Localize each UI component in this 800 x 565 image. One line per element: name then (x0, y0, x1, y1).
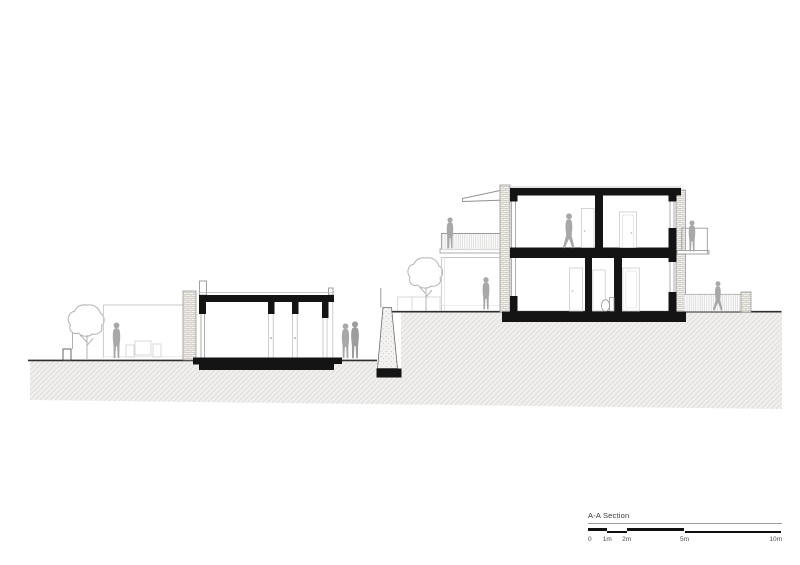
tree-icon (408, 258, 443, 311)
retaining-wall-stem (378, 308, 398, 369)
left-wall-header (199, 295, 206, 314)
chair (126, 345, 134, 357)
scale-segment (685, 531, 782, 533)
left-wall-base (510, 296, 518, 312)
left-wall-header (510, 188, 518, 202)
chair (153, 344, 161, 357)
garden-fence-mesh (684, 295, 741, 312)
scale-tick-label: 10m (769, 536, 782, 543)
door-leaf-lines (293, 314, 298, 358)
brick-fence-post (741, 292, 751, 312)
balcony-slab (677, 251, 709, 255)
door-outline (582, 209, 595, 248)
toilet-bowl (602, 300, 610, 312)
bathroom-partition-left (585, 258, 592, 312)
foundation-slab (502, 312, 686, 323)
person-silhouette-standing (689, 220, 696, 251)
person-silhouette-standing (483, 277, 490, 309)
pedestrian-couple (342, 321, 359, 358)
brick-pier (183, 291, 196, 360)
person-silhouette-standing (342, 323, 349, 358)
person-silhouette-standing (113, 323, 120, 359)
scale-bar-graphic (588, 528, 782, 534)
retaining-wall-footing (377, 369, 402, 378)
partition-lintel (292, 302, 299, 314)
upper-floor-doors (582, 209, 637, 248)
terrace-frame (441, 258, 503, 312)
floor-slab-step-left (193, 358, 199, 365)
scale-tick-label: 1m (603, 536, 612, 543)
scale-tick-label: 2m (622, 536, 631, 543)
section-drawing-canvas (0, 0, 800, 565)
earth-section (28, 312, 782, 409)
scale-segment (588, 528, 607, 531)
table (135, 341, 151, 355)
left-garden (63, 305, 183, 360)
door-leaf-lines (269, 314, 274, 358)
drawing-title: A-A Section (588, 511, 782, 520)
door-outline (620, 212, 637, 248)
door-handle (270, 337, 272, 339)
tree-icon (68, 305, 104, 360)
brick-pier-left (500, 185, 510, 312)
scale-tick-label: 5m (680, 536, 689, 543)
lower-terrace-elevation (441, 258, 504, 312)
right-wall-header (322, 302, 329, 318)
right-wall-base (669, 292, 677, 312)
sunroom-furniture (126, 341, 161, 357)
door-outline (623, 268, 640, 312)
door-inner-panel (623, 215, 634, 248)
toilet-tank (610, 298, 615, 312)
person-silhouette-walking (563, 213, 574, 248)
scale-segment (607, 531, 626, 533)
balcony-slab (440, 249, 508, 253)
door-outline (570, 268, 583, 312)
roof-vent (329, 288, 334, 295)
roof-slab (510, 188, 681, 196)
door-handle (584, 230, 586, 232)
right-wall-header (669, 188, 677, 202)
door-handle (294, 337, 296, 339)
scale-bar: A-A Section 0 1m 2m 5m 10m (588, 511, 782, 545)
right-wall-glazing-upper (670, 202, 674, 229)
floor-slab (199, 358, 334, 371)
left-wall-glazing-lower (512, 258, 516, 296)
partition-lintel (268, 302, 275, 314)
scale-segment (627, 528, 685, 531)
garden-fence (397, 297, 441, 311)
right-garden (684, 281, 751, 312)
courtyard (397, 189, 510, 312)
floor-slab-step-right (334, 358, 342, 365)
upper-partition-wall (595, 196, 603, 248)
left-pavilion-section (183, 281, 342, 370)
intermediate-floor-slab (510, 248, 677, 259)
roof-slab (199, 295, 334, 302)
garden-bollard (63, 349, 71, 360)
door-handle (631, 232, 633, 234)
main-house-section (500, 185, 686, 322)
door-inner-panel (626, 271, 637, 308)
scale-bar-labels: 0 1m 2m 5m 10m (588, 536, 782, 545)
left-wall-glazing (201, 314, 205, 358)
left-wall-glazing-upper (512, 202, 516, 248)
scale-bar-divider (588, 523, 782, 524)
toilet-fixture (602, 298, 615, 312)
right-wall-glazing-lower (670, 262, 674, 292)
door-handle (572, 290, 574, 292)
person-silhouette-standing (351, 321, 359, 358)
section-drawing-page: A-A Section 0 1m 2m 5m 10m (0, 0, 800, 565)
bathroom-partition-right (614, 258, 622, 312)
scale-tick-label: 0 (588, 536, 592, 543)
